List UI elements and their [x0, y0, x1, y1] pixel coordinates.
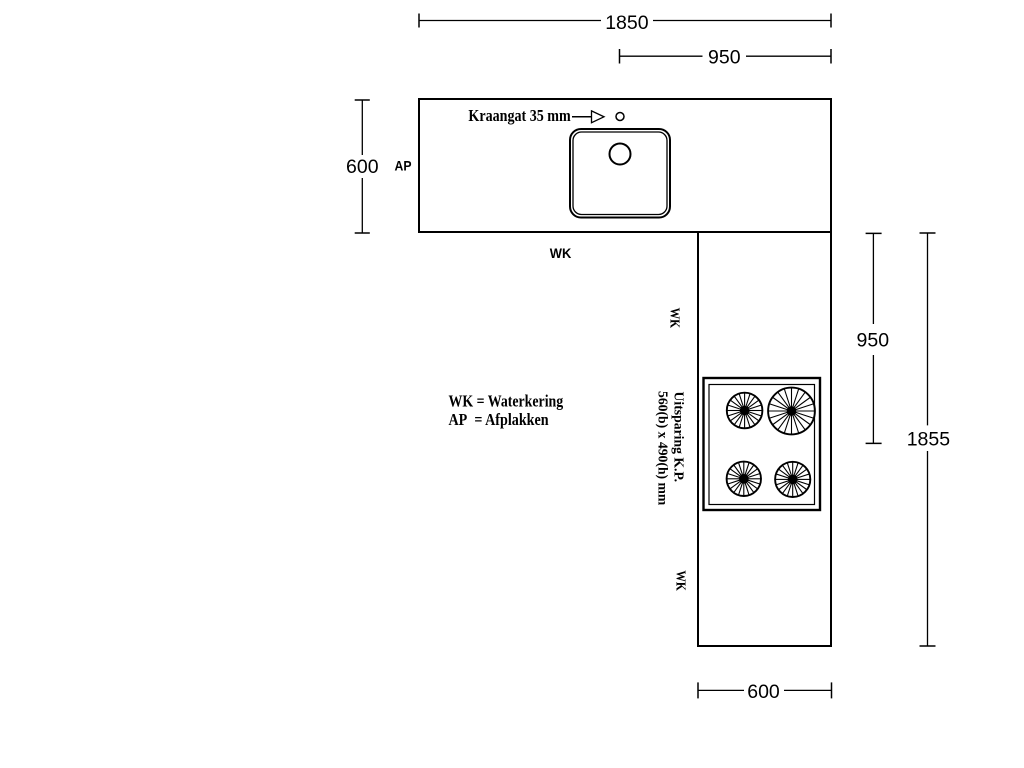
svg-text:WK: WK	[673, 570, 688, 591]
svg-text:950: 950	[708, 47, 741, 69]
svg-text:Uitsparing K.P.: Uitsparing K.P.	[670, 392, 685, 483]
svg-text:AP: AP	[395, 158, 412, 174]
svg-text:1855: 1855	[907, 429, 951, 451]
svg-text:WK = Waterkering: WK = Waterkering	[449, 391, 564, 410]
svg-text:AP = Afplakken: AP = Afplakken	[449, 410, 550, 429]
svg-text:600: 600	[747, 681, 780, 703]
svg-text:Kraangat 35 mm: Kraangat 35 mm	[468, 106, 570, 125]
svg-text:560(b) x 490(h) mm: 560(b) x 490(h) mm	[654, 391, 669, 506]
svg-text:WK: WK	[550, 245, 572, 261]
svg-text:600: 600	[346, 156, 379, 178]
svg-text:1850: 1850	[605, 12, 649, 34]
svg-text:950: 950	[857, 330, 890, 352]
svg-text:WK: WK	[666, 308, 681, 329]
